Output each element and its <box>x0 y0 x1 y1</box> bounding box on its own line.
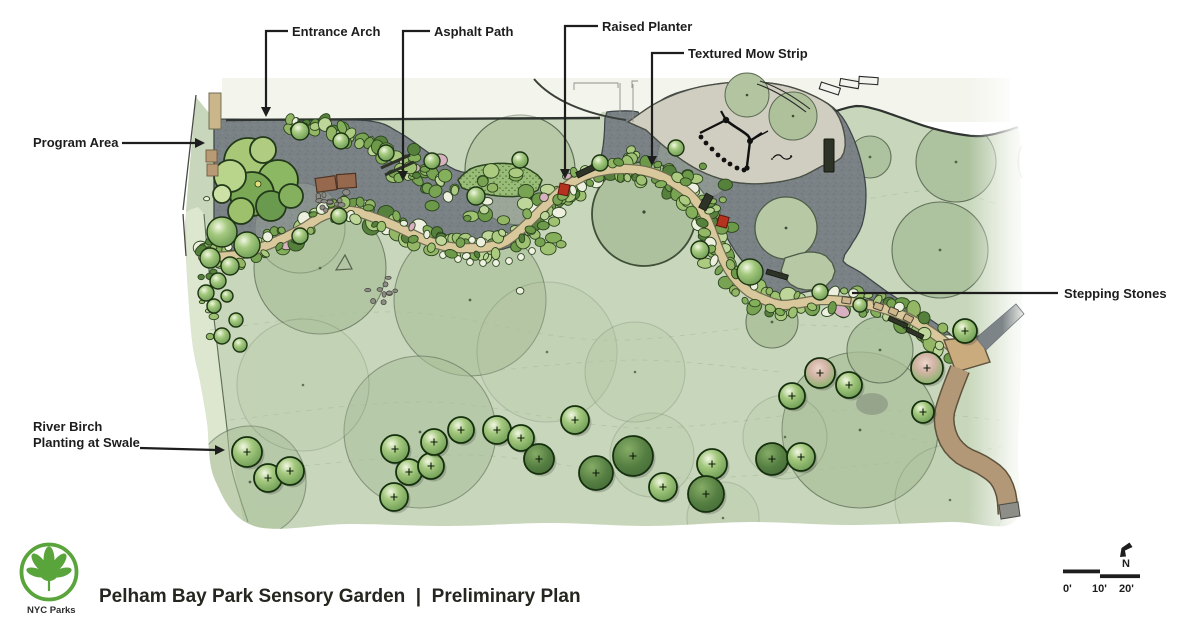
svg-text:Stepping Stones: Stepping Stones <box>1064 286 1167 301</box>
svg-text:Textured Mow Strip: Textured Mow Strip <box>688 46 808 61</box>
svg-text:Planting at Swale: Planting at Swale <box>33 435 140 450</box>
svg-text:N: N <box>1122 558 1130 570</box>
svg-text:20': 20' <box>1119 583 1134 595</box>
svg-text:River Birch: River Birch <box>33 419 102 434</box>
svg-text:Pelham Bay Park Sensory Garden: Pelham Bay Park Sensory Garden | Prelimi… <box>99 586 581 607</box>
svg-text:Asphalt Path: Asphalt Path <box>434 24 514 39</box>
svg-text:Entrance Arch: Entrance Arch <box>292 24 380 39</box>
svg-text:0': 0' <box>1063 583 1072 595</box>
svg-text:Raised Planter: Raised Planter <box>602 19 692 34</box>
svg-text:10': 10' <box>1092 583 1107 595</box>
svg-text:Program Area: Program Area <box>33 135 119 150</box>
svg-text:NYC Parks: NYC Parks <box>27 605 76 616</box>
